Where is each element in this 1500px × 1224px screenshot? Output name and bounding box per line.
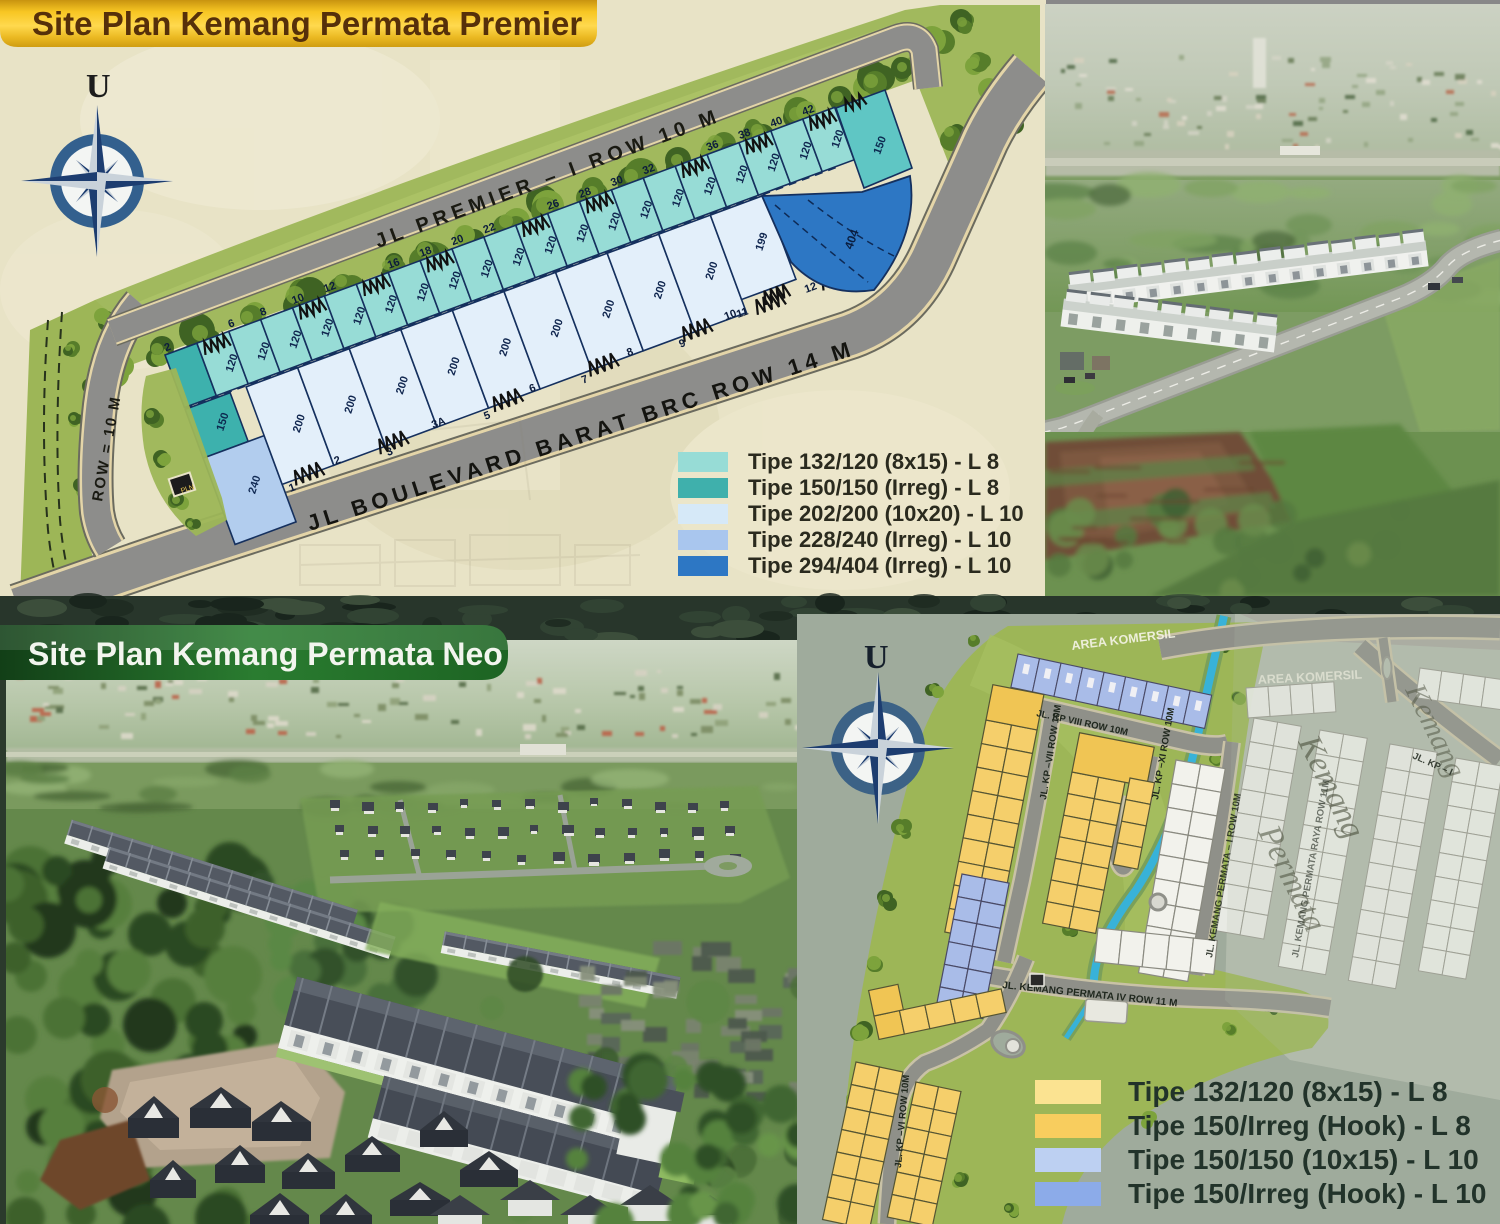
svg-text:Tipe 150/150 (Irreg) - L 8: Tipe 150/150 (Irreg) - L 8	[748, 475, 999, 500]
svg-text:Tipe 294/404 (Irreg) - L 10: Tipe 294/404 (Irreg) - L 10	[748, 553, 1011, 578]
svg-text:Tipe 132/120 (8x15) - L 8: Tipe 132/120 (8x15) - L 8	[1128, 1076, 1448, 1107]
svg-text:Site Plan Kemang Permata Neo: Site Plan Kemang Permata Neo	[28, 636, 503, 672]
svg-text:Tipe 150/150 (10x15) - L 10: Tipe 150/150 (10x15) - L 10	[1128, 1144, 1479, 1175]
svg-text:U: U	[864, 639, 889, 676]
svg-text:U: U	[86, 68, 111, 105]
svg-text:Site Plan Kemang Permata Premi: Site Plan Kemang Permata Premier	[32, 5, 582, 42]
svg-text:Tipe 202/200 (10x20) - L 10: Tipe 202/200 (10x20) - L 10	[748, 501, 1024, 526]
svg-text:Tipe 228/240 (Irreg) - L 10: Tipe 228/240 (Irreg) - L 10	[748, 527, 1011, 552]
svg-text:Tipe 150/Irreg (Hook) - L 8: Tipe 150/Irreg (Hook) - L 8	[1128, 1110, 1471, 1141]
svg-text:Tipe 132/120 (8x15) - L 8: Tipe 132/120 (8x15) - L 8	[748, 449, 999, 474]
svg-text:Tipe 150/Irreg (Hook) - L 10: Tipe 150/Irreg (Hook) - L 10	[1128, 1178, 1486, 1209]
